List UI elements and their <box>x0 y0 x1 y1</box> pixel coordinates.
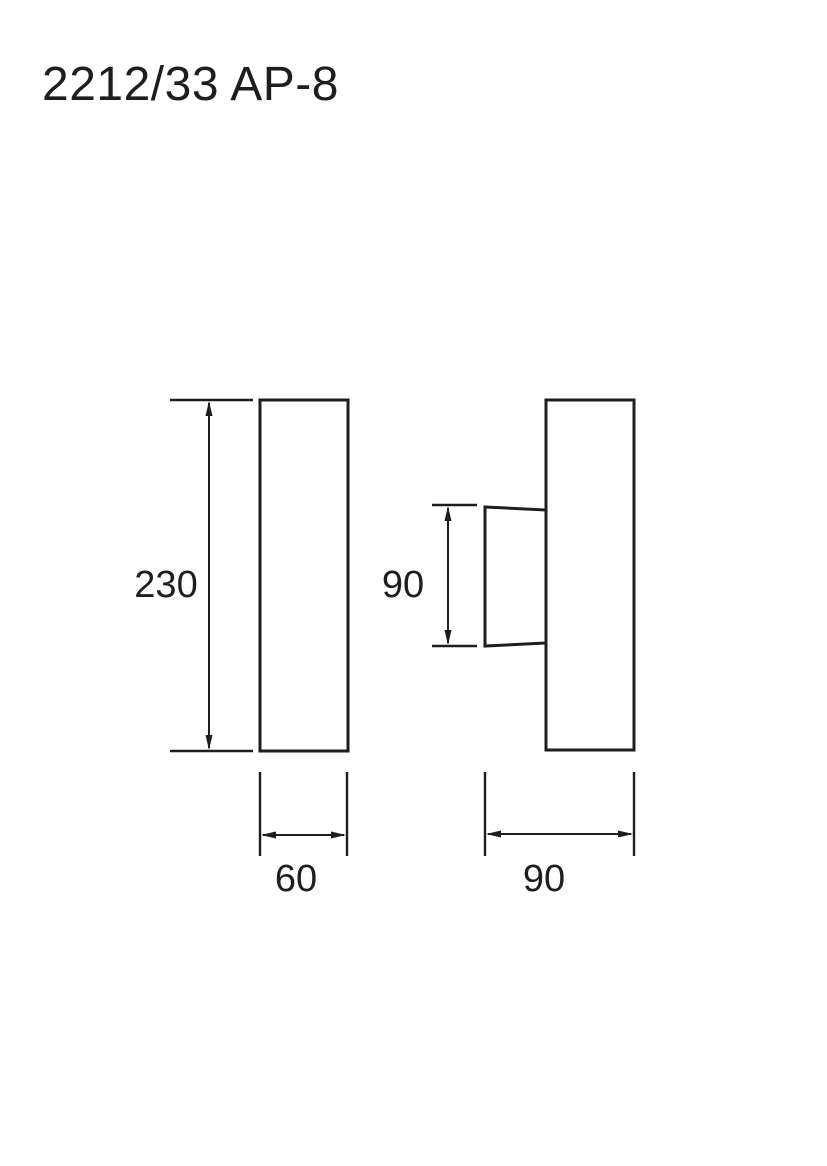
technical-drawing: 2212/33 AP-8 230 60 <box>0 0 827 1166</box>
front-width-dimension-label: 60 <box>275 858 317 900</box>
arrow-up-icon <box>206 401 213 416</box>
front-width-dimension: 60 <box>260 772 347 900</box>
arrow-left-icon <box>261 832 276 839</box>
arrow-left-icon <box>486 831 501 838</box>
arrow-down-icon <box>445 630 452 645</box>
arrow-right-icon <box>618 831 633 838</box>
side-depth-dimension-label: 90 <box>523 858 565 900</box>
side-view: 90 90 <box>382 400 634 900</box>
front-view: 230 60 <box>134 400 348 900</box>
product-code-title: 2212/33 AP-8 <box>42 58 339 111</box>
side-view-lamp-body-outline <box>485 507 546 646</box>
side-height-dimension: 90 <box>382 505 477 646</box>
front-view-body-outline <box>260 400 348 751</box>
drawing-page: 2212/33 AP-8 230 60 <box>0 0 827 1166</box>
front-height-dimension: 230 <box>134 400 253 751</box>
side-depth-dimension: 90 <box>485 772 634 900</box>
side-view-backplate-outline <box>546 400 634 750</box>
arrow-up-icon <box>445 506 452 521</box>
arrow-right-icon <box>331 832 346 839</box>
front-height-dimension-label: 230 <box>134 564 197 606</box>
side-height-dimension-label: 90 <box>382 564 424 606</box>
arrow-down-icon <box>206 735 213 750</box>
